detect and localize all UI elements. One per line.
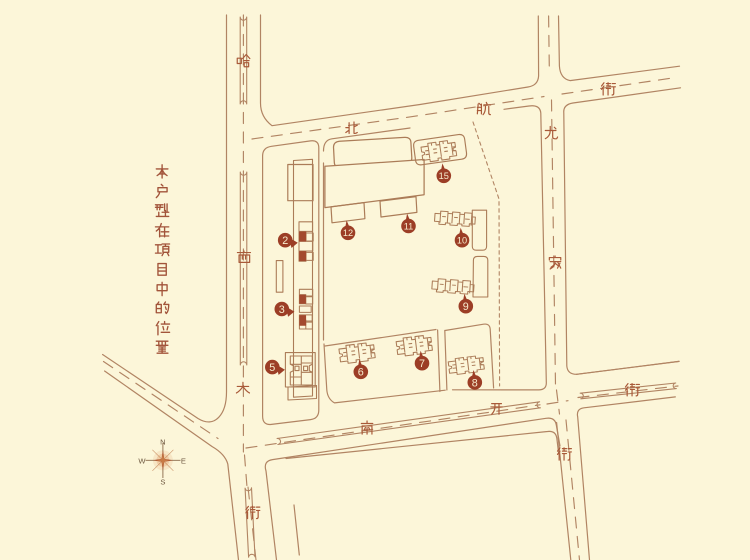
svg-text:8: 8 xyxy=(472,377,478,389)
svg-text:10: 10 xyxy=(457,236,467,246)
svg-text:3: 3 xyxy=(279,304,285,316)
svg-text:5: 5 xyxy=(269,362,275,374)
svg-text:12: 12 xyxy=(343,228,353,238)
svg-text:11: 11 xyxy=(404,221,414,231)
svg-text:6: 6 xyxy=(358,367,364,379)
svg-text:7: 7 xyxy=(419,358,425,370)
svg-text:9: 9 xyxy=(463,301,469,313)
svg-text:N: N xyxy=(160,437,165,446)
svg-text:2: 2 xyxy=(282,235,288,247)
svg-text:15: 15 xyxy=(439,171,449,181)
svg-text:S: S xyxy=(160,478,165,487)
svg-text:E: E xyxy=(181,456,186,465)
svg-text:W: W xyxy=(138,456,146,465)
